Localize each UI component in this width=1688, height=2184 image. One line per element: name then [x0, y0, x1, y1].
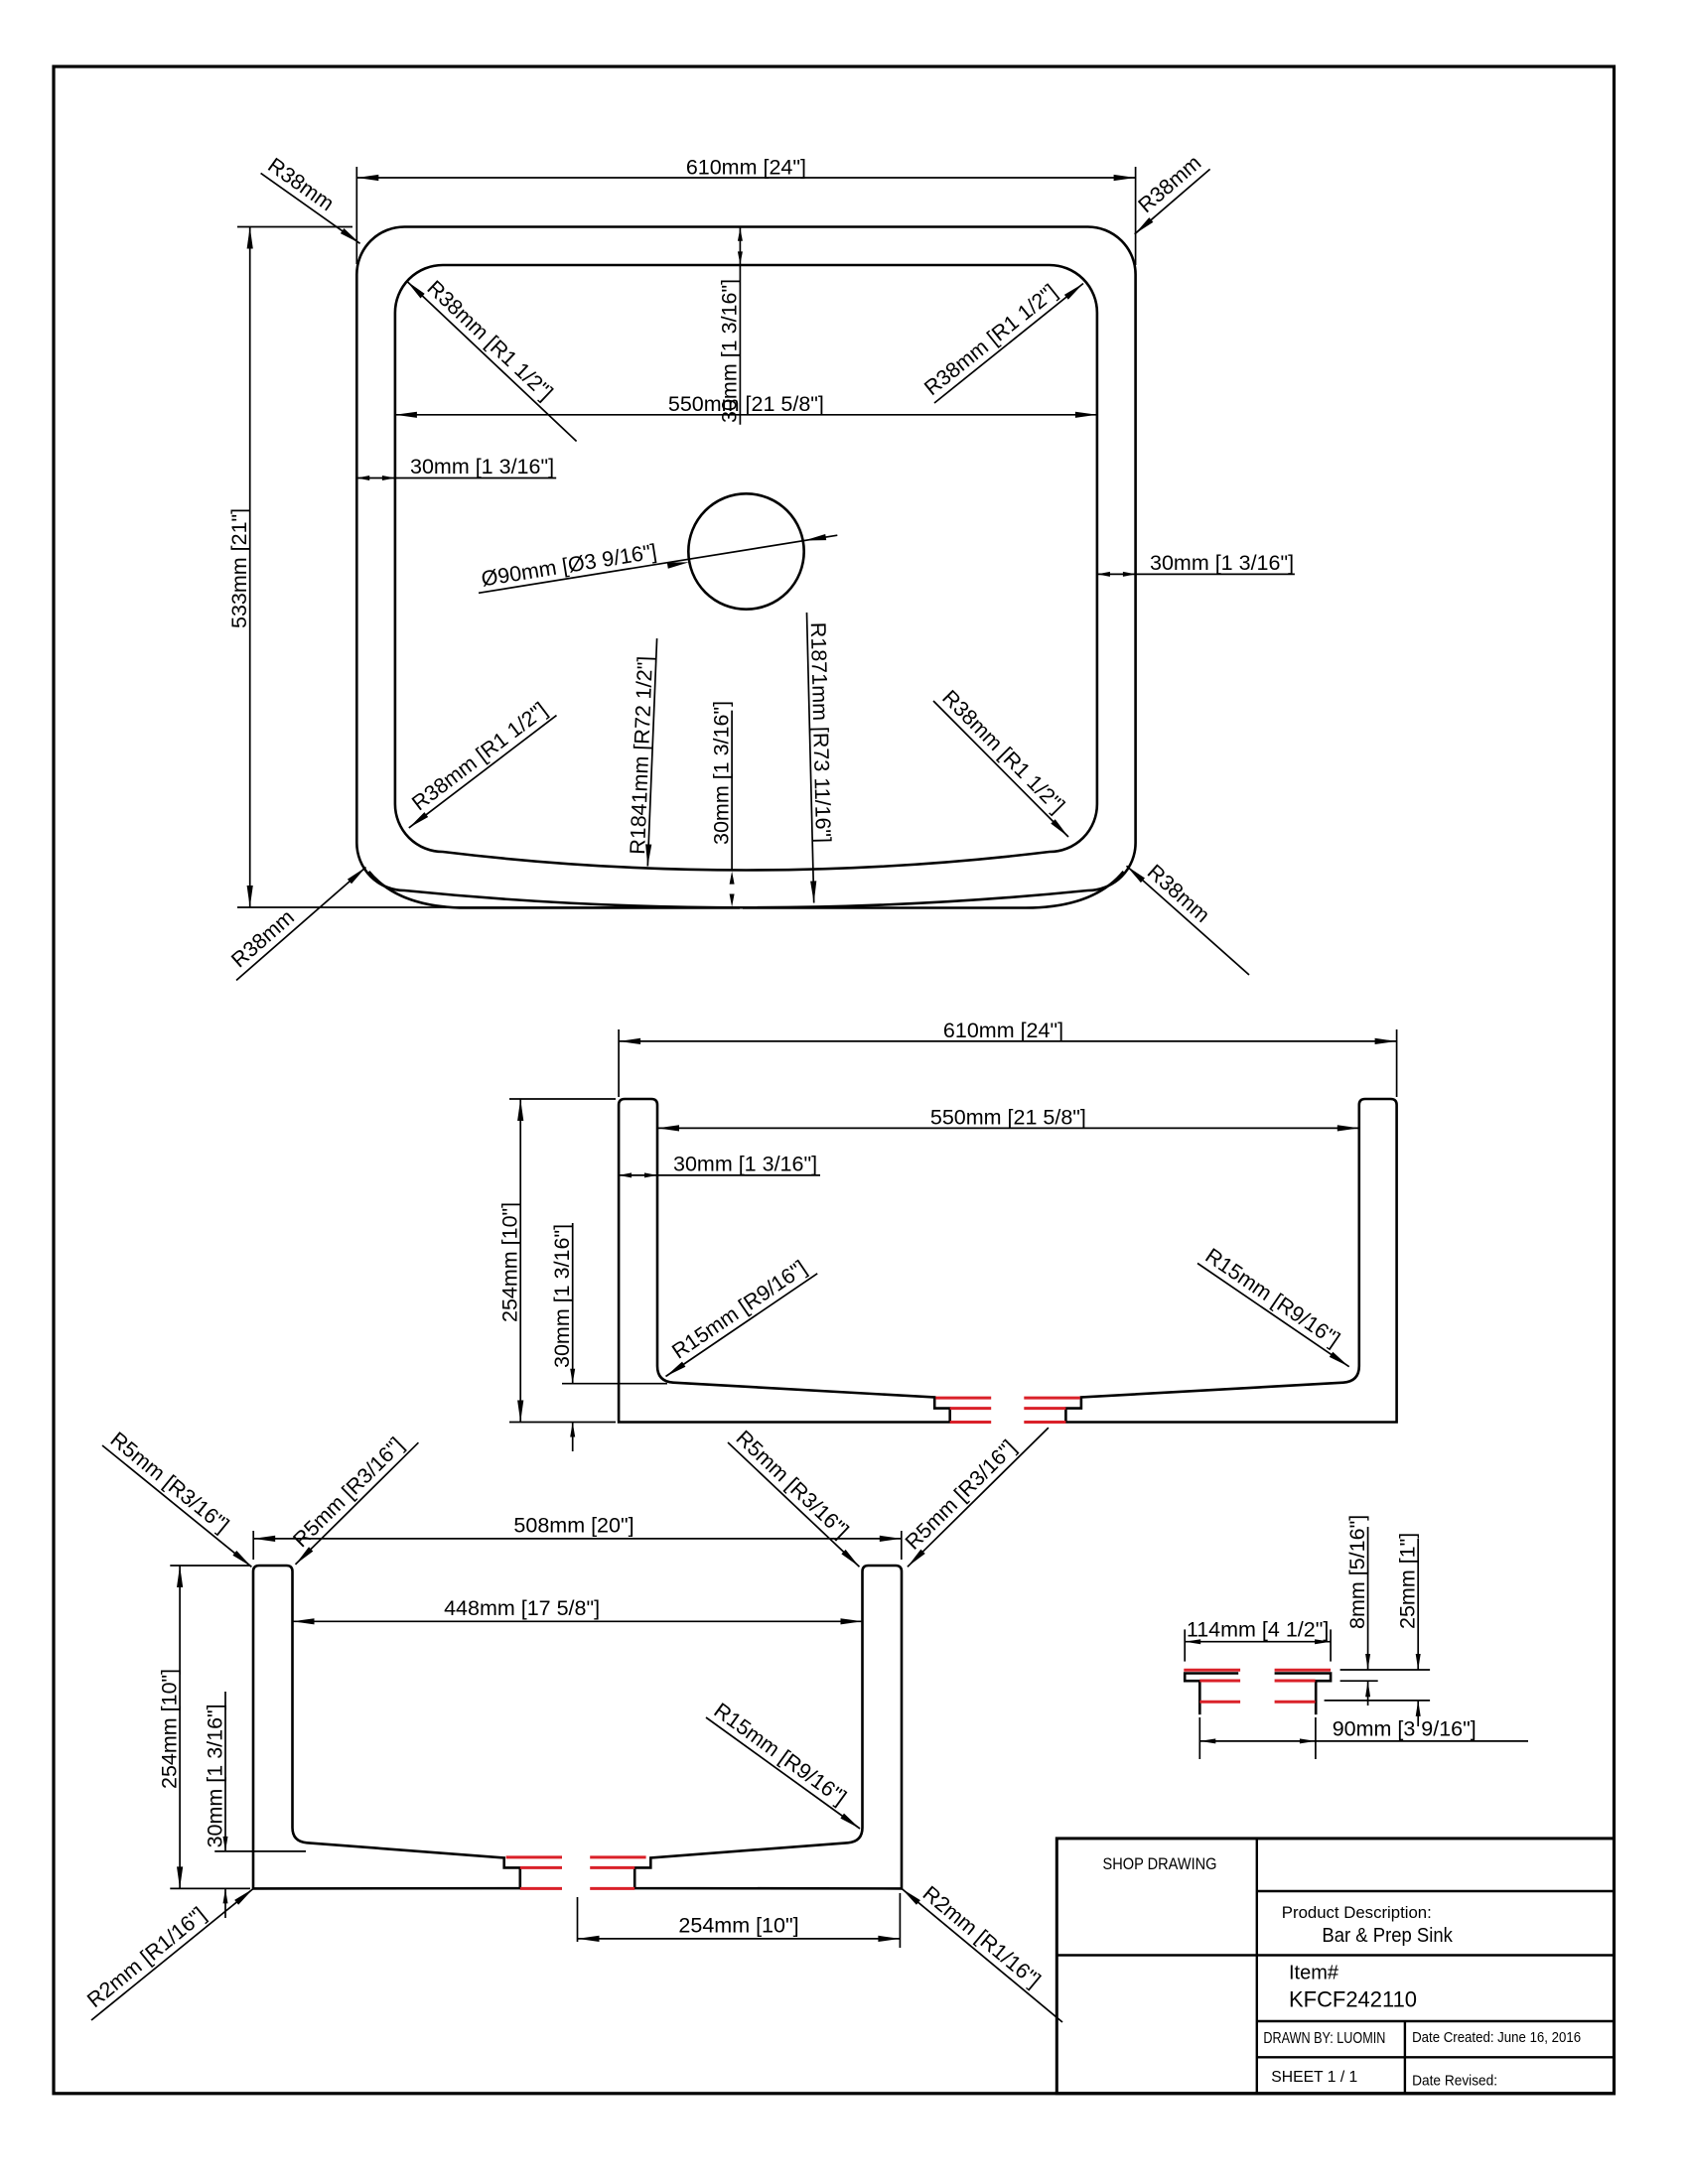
- svg-text:30mm [1 3/16"]: 30mm [1 3/16"]: [673, 1153, 817, 1176]
- svg-text:30mm [1 3/16"]: 30mm [1 3/16"]: [410, 455, 554, 478]
- svg-text:8mm [5/16"]: 8mm [5/16"]: [1345, 1515, 1369, 1629]
- svg-text:254mm [10"]: 254mm [10"]: [678, 1914, 798, 1938]
- svg-text:KFCF242110: KFCF242110: [1289, 1987, 1417, 2012]
- svg-text:25mm [1"]: 25mm [1"]: [1396, 1533, 1420, 1629]
- svg-text:254mm [10"]: 254mm [10"]: [498, 1202, 522, 1322]
- svg-text:610mm [24"]: 610mm [24"]: [943, 1019, 1063, 1042]
- svg-text:508mm [20"]: 508mm [20"]: [513, 1514, 633, 1538]
- svg-text:610mm [24"]: 610mm [24"]: [686, 156, 806, 180]
- svg-text:114mm [4 1/2"]: 114mm [4 1/2"]: [1187, 1618, 1329, 1642]
- svg-text:30mm [1 3/16"]: 30mm [1 3/16"]: [709, 701, 733, 845]
- svg-text:533mm [21"]: 533mm [21"]: [227, 508, 251, 628]
- svg-text:30mm [1 3/16"]: 30mm [1 3/16"]: [718, 279, 742, 423]
- svg-text:SHEET 1 / 1: SHEET 1 / 1: [1271, 2069, 1357, 2086]
- svg-text:Product Description:: Product Description:: [1282, 1903, 1432, 1922]
- svg-text:DRAWN BY: LUOMIN: DRAWN BY: LUOMIN: [1263, 2030, 1385, 2047]
- svg-text:90mm [3 9/16"]: 90mm [3 9/16"]: [1333, 1717, 1477, 1741]
- svg-text:254mm [10"]: 254mm [10"]: [157, 1669, 181, 1789]
- svg-text:Date Revised:: Date Revised:: [1412, 2073, 1497, 2090]
- svg-text:30mm [1 3/16"]: 30mm [1 3/16"]: [203, 1704, 226, 1847]
- svg-text:Bar & Prep Sink: Bar & Prep Sink: [1322, 1925, 1453, 1947]
- svg-text:Date Created: June 16, 2016: Date Created: June 16, 2016: [1412, 2030, 1581, 2046]
- svg-text:SHOP DRAWING: SHOP DRAWING: [1103, 1855, 1217, 1873]
- svg-text:Item#: Item#: [1289, 1963, 1339, 1984]
- svg-text:30mm [1 3/16"]: 30mm [1 3/16"]: [1150, 551, 1294, 575]
- svg-text:550mm [21 5/8"]: 550mm [21 5/8"]: [668, 392, 824, 416]
- svg-text:550mm [21 5/8"]: 550mm [21 5/8"]: [930, 1106, 1086, 1130]
- svg-text:30mm [1 3/16"]: 30mm [1 3/16"]: [550, 1224, 574, 1368]
- svg-text:448mm [17 5/8"]: 448mm [17 5/8"]: [444, 1596, 600, 1620]
